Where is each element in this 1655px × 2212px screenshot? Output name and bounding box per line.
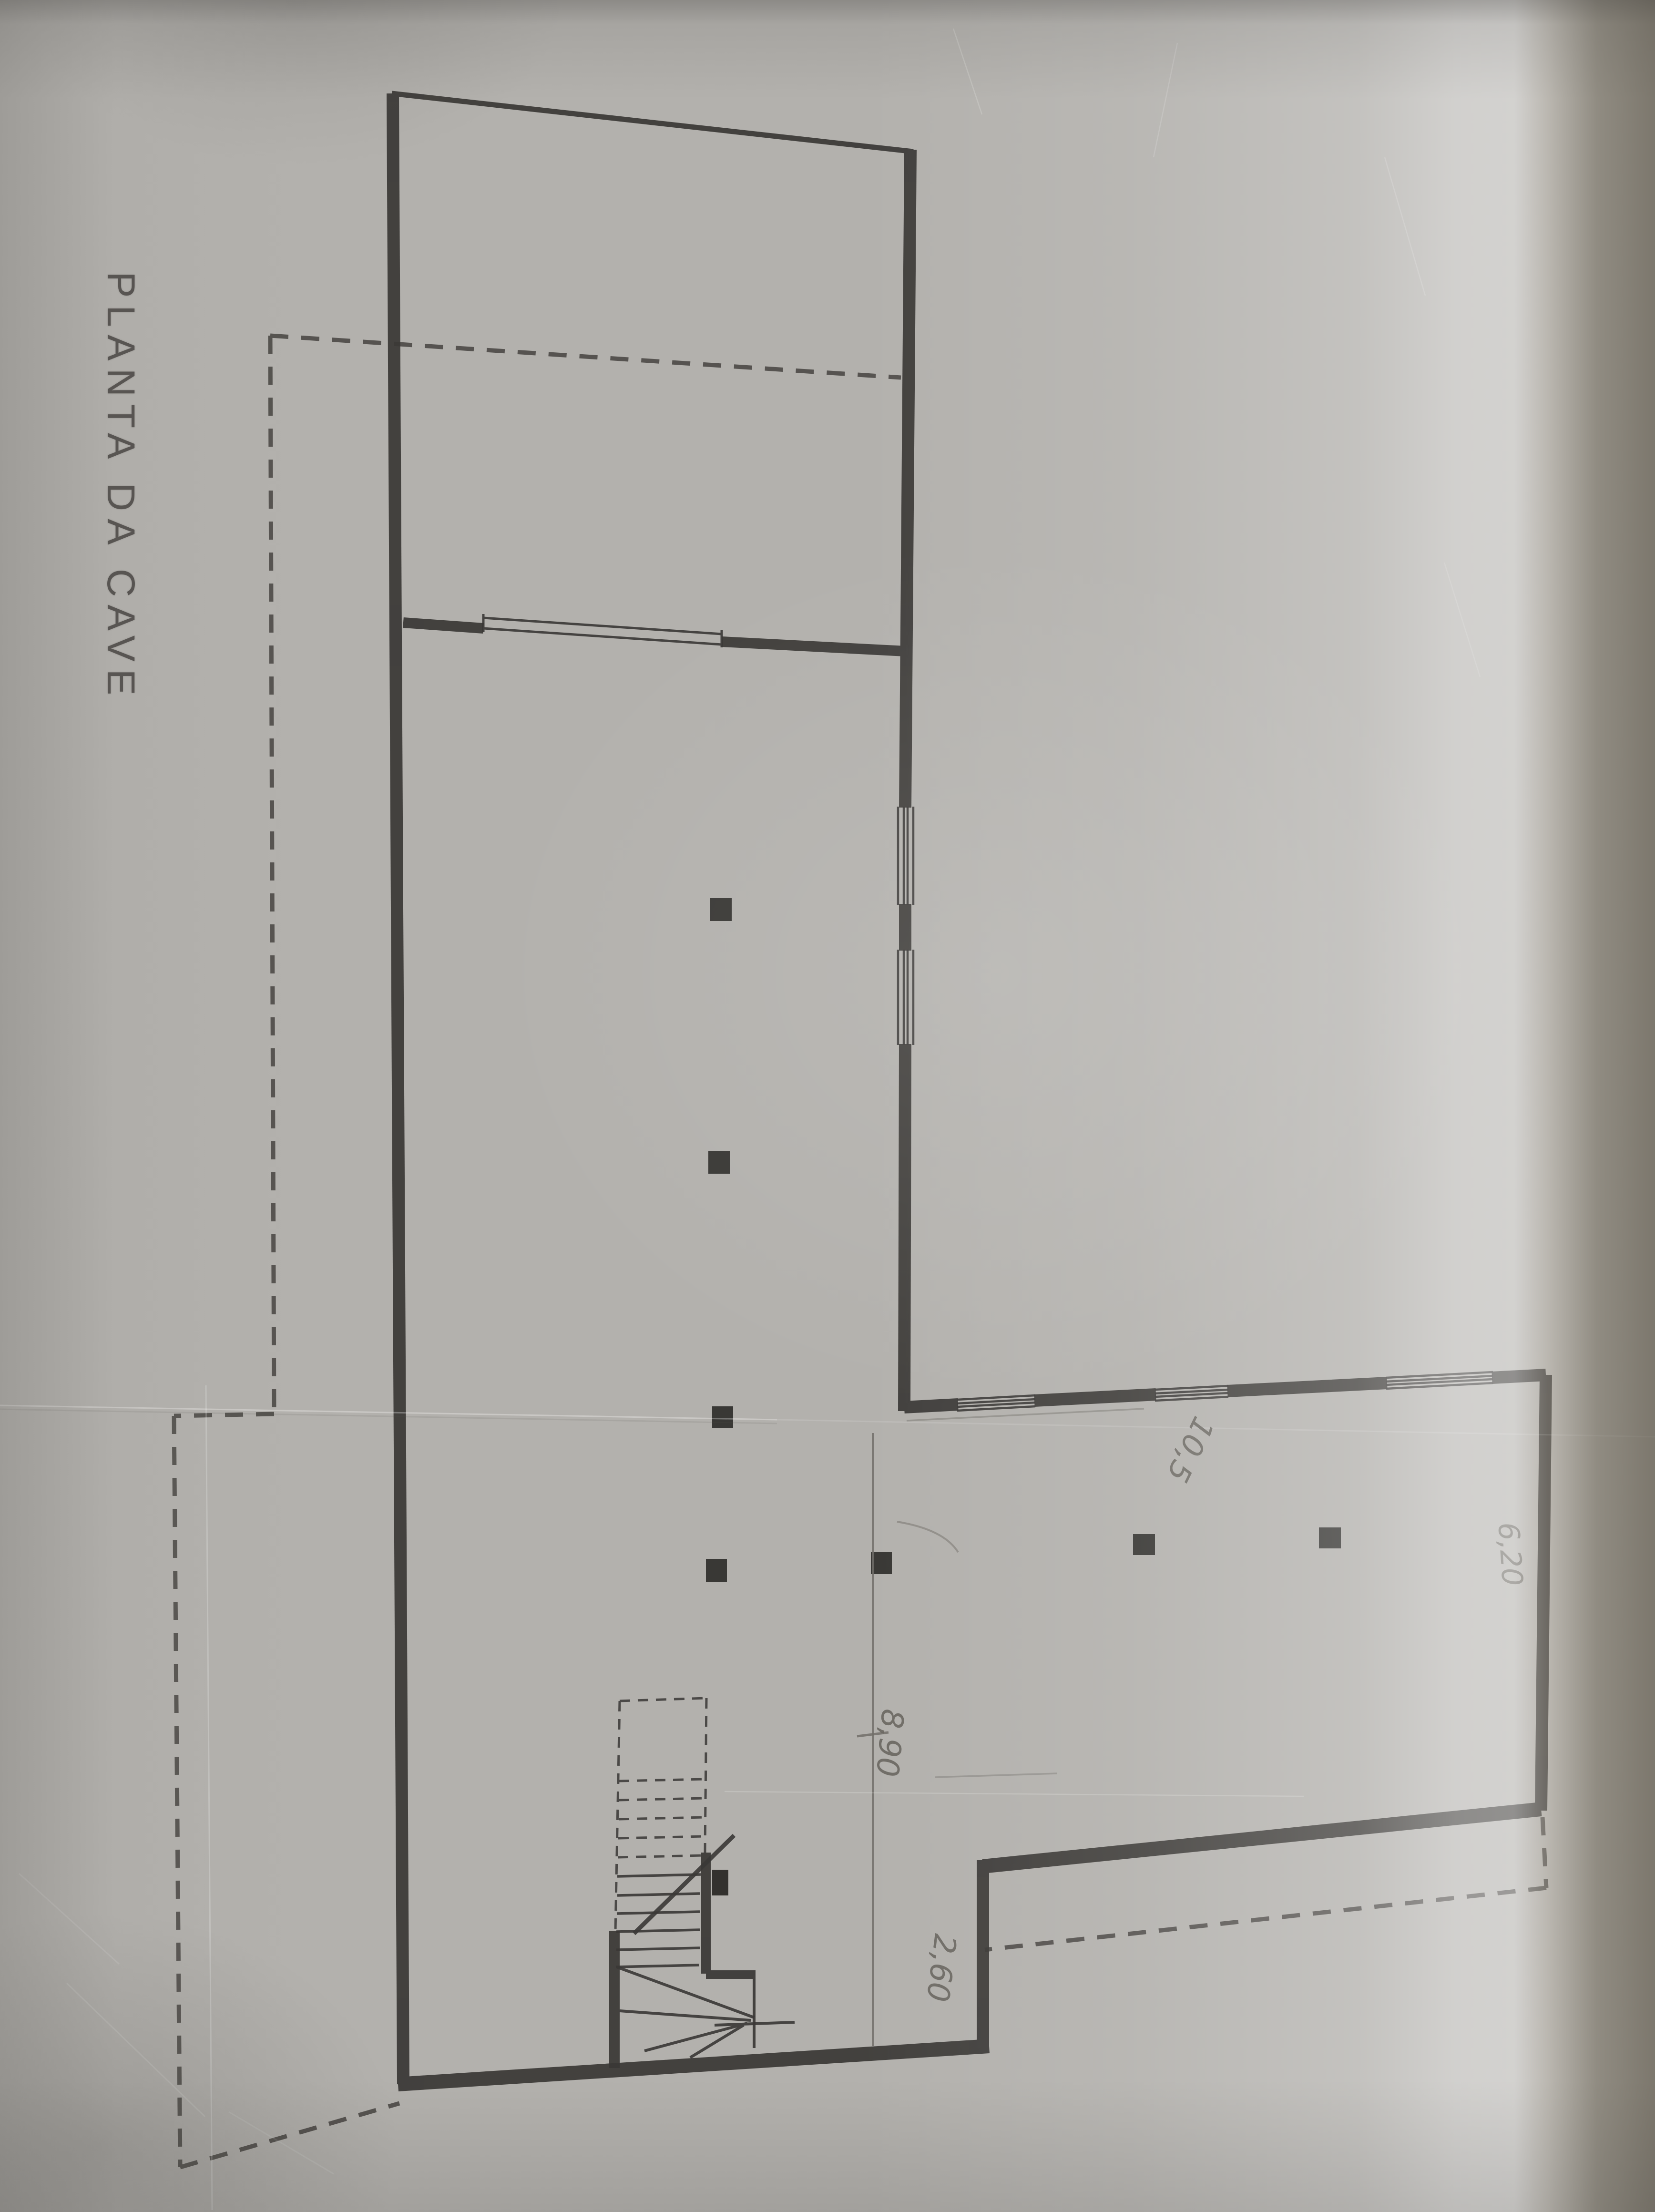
plan-title: PLANTA DA CAVE: [98, 272, 143, 703]
window-right-wall-1: [898, 807, 913, 905]
wall-right-upper: [905, 150, 910, 808]
floor-plan-drawing: [0, 0, 1655, 2212]
wall-wing-top-2: [1034, 1394, 1156, 1401]
wall-bottom: [398, 2046, 989, 2084]
wall-left: [393, 93, 403, 2084]
dashed-boundary-lines: [174, 336, 1546, 2167]
dimension-label-890: 8,90: [869, 1708, 910, 1778]
scanned-floor-plan-photo: PLANTA DA CAVE 8,90 2,60 10,5 6,20: [0, 0, 1655, 2212]
dimension-label-620: 6,20: [1491, 1521, 1529, 1587]
window-wing-1: [957, 1395, 1035, 1411]
wall-partition-left-stub: [403, 623, 483, 628]
wall-wing-bottom: [983, 1809, 1541, 1866]
wall-partition-right-stub: [722, 642, 905, 651]
walls: [392, 93, 1546, 2084]
window-wing-2: [1155, 1386, 1228, 1401]
windows: [483, 614, 1493, 1411]
stair-winders: [617, 1967, 795, 2058]
columns: [706, 898, 1341, 1582]
wall-wing-top-3: [1227, 1383, 1387, 1391]
staircase: [614, 1698, 795, 2068]
window-wing-3: [1386, 1372, 1493, 1389]
wall-wing-top-1: [904, 1404, 958, 1407]
wall-wing-right: [1541, 1375, 1546, 1811]
window-right-wall-2: [898, 950, 913, 1045]
wall-right-lower: [904, 1044, 905, 1411]
wall-top-oblique: [392, 93, 913, 152]
stair-newel-block: [712, 1870, 728, 1895]
paper-creases: [0, 29, 1655, 2210]
stair-solid-treads: [616, 1874, 701, 1967]
stair-dashed-outline: [615, 1698, 706, 1932]
wall-wing-top-4: [1492, 1375, 1546, 1378]
